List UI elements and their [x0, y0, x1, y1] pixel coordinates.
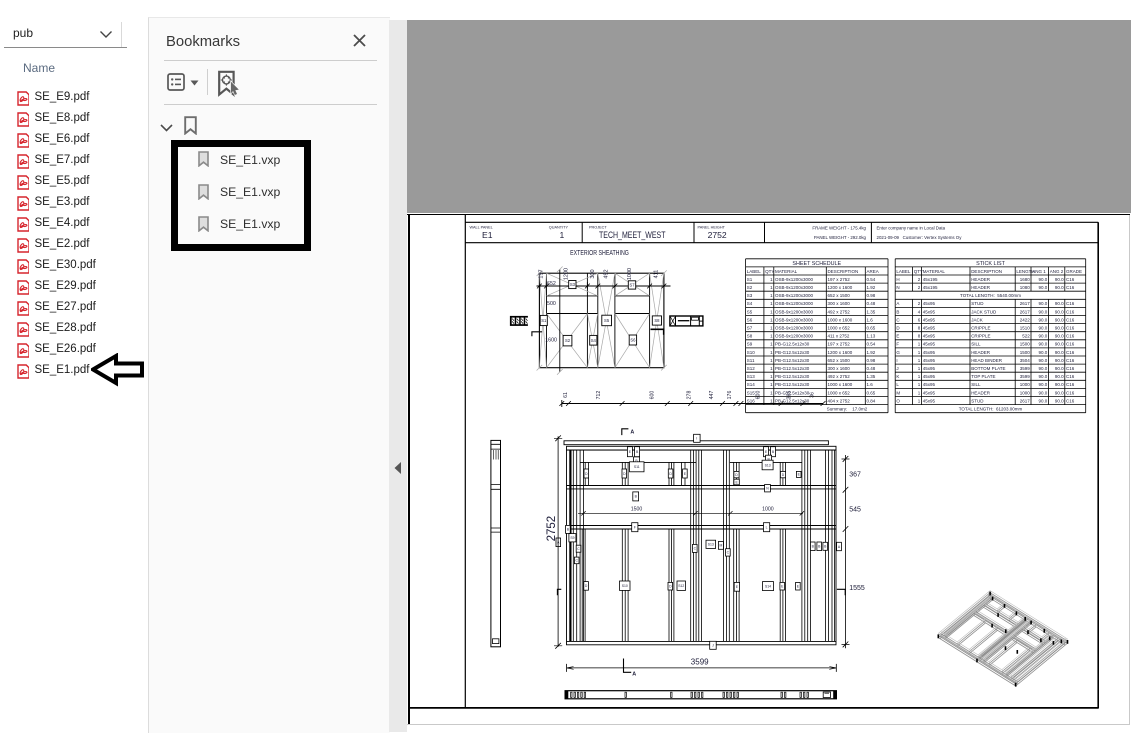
- svg-text:S9: S9: [570, 536, 574, 540]
- svg-text:1200: 1200: [563, 268, 569, 280]
- svg-text:SHEET SCHEDULE: SHEET SCHEDULE: [792, 261, 841, 267]
- svg-text:PROJECT: PROJECT: [589, 225, 607, 229]
- svg-text:K145x95TOP PLATE359990.090.0C1: K145x95TOP PLATE359990.090.0C16: [896, 374, 1074, 379]
- svg-text:3599: 3599: [691, 657, 709, 666]
- svg-text:O145x95STUD261790.090.0C16: O145x95STUD261790.090.0C16: [896, 398, 1074, 403]
- svg-text:STICK LIST: STICK LIST: [976, 261, 1005, 267]
- svg-text:L145x95SILL100090.090.0C16: L145x95SILL100090.090.0C16: [896, 382, 1074, 387]
- svg-text:S91PB-G12.5x12x30197 x 27520.5: S91PB-G12.5x12x30197 x 27520.54: [747, 342, 876, 347]
- svg-text:S61OSB-9x1200x30001000 x 16001: S61OSB-9x1200x30001000 x 16001.6: [747, 317, 873, 322]
- svg-text:S1: S1: [541, 318, 547, 323]
- svg-text:712: 712: [596, 391, 602, 400]
- svg-text:TOTAL LENGTH: 5540.00mm: TOTAL LENGTH: 5540.00mm: [960, 293, 1021, 298]
- svg-text:278: 278: [687, 391, 693, 400]
- svg-text:S101PB-G12.5x12x301200 x 16001: S101PB-G12.5x12x301200 x 16001.92: [747, 350, 876, 355]
- svg-text:TECH_MEET_WEST: TECH_MEET_WEST: [599, 230, 666, 240]
- svg-text:A: A: [632, 671, 636, 677]
- svg-text:492: 492: [604, 269, 610, 278]
- svg-text:S13: S13: [765, 463, 771, 467]
- svg-text:J: J: [712, 644, 714, 648]
- svg-text:S11OSB-9x1200x3000197 x 27520.: S11OSB-9x1200x3000197 x 27520.54: [747, 277, 876, 282]
- svg-text:1: 1: [560, 230, 565, 240]
- svg-text:176: 176: [727, 391, 733, 400]
- svg-text:S5: S5: [604, 318, 610, 323]
- svg-text:E1: E1: [482, 230, 493, 240]
- svg-text:S51OSB-9x1200x3000492 x 27521.: S51OSB-9x1200x3000492 x 27521.35: [747, 309, 876, 314]
- svg-text:1600: 1600: [545, 338, 557, 344]
- svg-text:G145x95HEADER150090.090.0C16: G145x95HEADER150090.090.0C16: [896, 350, 1074, 355]
- svg-text:D845x95CRIPPLE151090.090.0C16: D845x95CRIPPLE151090.090.0C16: [896, 326, 1074, 331]
- svg-text:S131PB-G12.5x12x30492 x 27521.: S131PB-G12.5x12x30492 x 27521.35: [747, 374, 876, 379]
- svg-text:H245x195HEADER168090.090.0C16: H245x195HEADER168090.090.0C16: [896, 277, 1074, 282]
- svg-text:1555: 1555: [849, 585, 865, 592]
- svg-text:545: 545: [849, 507, 861, 514]
- svg-text:S10: S10: [622, 584, 628, 588]
- svg-text:S111PB-G12.5x12x30652 x 15000.: S111PB-G12.5x12x30652 x 15000.98: [747, 358, 876, 363]
- svg-text:S21OSB-9x1200x30001200 x 16001: S21OSB-9x1200x30001200 x 16001.92: [747, 285, 876, 290]
- svg-text:L: L: [766, 526, 768, 530]
- svg-text:600: 600: [756, 391, 762, 400]
- svg-text:S8: S8: [654, 318, 660, 323]
- svg-text:I145x95HEAD BINDER350490.090.0: I145x95HEAD BINDER350490.090.0C16: [896, 358, 1074, 363]
- svg-text:600: 600: [650, 391, 656, 400]
- svg-text:652: 652: [547, 281, 556, 287]
- svg-text:LABELQTYMATERIALDESCRIPTIONARE: LABELQTYMATERIALDESCRIPTIONAREA: [747, 269, 879, 274]
- svg-text:M145x95HEADER100090.090.0C16: M145x95HEADER100090.090.0C16: [896, 390, 1074, 395]
- svg-text:FRAME WEIGHT - 175.4kg: FRAME WEIGHT - 175.4kg: [812, 226, 866, 231]
- svg-text:36: 36: [810, 392, 816, 398]
- svg-text:300: 300: [590, 269, 596, 278]
- svg-text:2021-09-09 Customer: Vertex: 2021-09-09 Customer: Vertex Systems Oy: [877, 235, 963, 240]
- svg-text:S31OSB-9x1200x3000652 x 15000.: S31OSB-9x1200x3000652 x 15000.98: [747, 293, 876, 298]
- svg-text:EXTERIOR SHEATHING: EXTERIOR SHEATHING: [570, 248, 629, 257]
- svg-text:S7: S7: [629, 283, 635, 288]
- svg-text:A: A: [630, 429, 634, 435]
- svg-text:B445x95JACK STUD261790.090.0C1: B445x95JACK STUD261790.090.0C16: [896, 309, 1074, 314]
- svg-text:E845x95CRIPPLE52290.090.0C16: E845x95CRIPPLE52290.090.0C16: [896, 334, 1074, 339]
- svg-text:F: F: [634, 526, 636, 530]
- svg-text:WALL PANEL: WALL PANEL: [470, 225, 493, 229]
- svg-text:S41OSB-9x1200x3000300 x 16000.: S41OSB-9x1200x3000300 x 16000.48: [747, 301, 876, 306]
- svg-text:2752: 2752: [708, 230, 727, 240]
- svg-text:197: 197: [539, 269, 545, 278]
- svg-text:447: 447: [709, 391, 715, 400]
- svg-text:367: 367: [849, 472, 861, 479]
- svg-text:S6: S6: [630, 338, 636, 343]
- svg-text:LABELQTYMATERIALDESCRIPTIONLEN: LABELQTYMATERIALDESCRIPTIONLENGTHANG 1AN…: [896, 269, 1082, 274]
- svg-text:S141PB-G12.5x12x301000 x 16001: S141PB-G12.5x12x301000 x 16001.6: [747, 382, 873, 387]
- svg-text:S13: S13: [708, 543, 714, 547]
- svg-text:S11: S11: [634, 465, 640, 469]
- svg-text:61: 61: [563, 392, 569, 398]
- svg-text:Enter company name in Local Da: Enter company name in Local Data: [877, 226, 946, 231]
- svg-text:TOTAL LENGTH: 61203.00mm: TOTAL LENGTH: 61203.00mm: [959, 407, 1023, 412]
- svg-text:A245x95STUD261790.090.0C16: A245x95STUD261790.090.0C16: [896, 301, 1074, 306]
- svg-text:500: 500: [547, 301, 556, 307]
- svg-text:F145x95SILL150090.090.0C16: F145x95SILL150090.090.0C16: [896, 342, 1074, 347]
- svg-text:S2: S2: [565, 338, 571, 343]
- svg-text:C645x95JACK242290.090.0C16: C645x95JACK242290.090.0C16: [896, 317, 1074, 322]
- svg-text:PANEL HEIGHT: PANEL HEIGHT: [698, 225, 726, 229]
- svg-text:S4: S4: [591, 338, 597, 343]
- svg-text:S121PB-G12.5x12x30300 x 16000.: S121PB-G12.5x12x30300 x 16000.48: [747, 366, 876, 371]
- svg-text:1000: 1000: [627, 268, 633, 280]
- svg-text:M: M: [719, 544, 722, 548]
- svg-text:S161PB-G12.5x12x30404 x 27520.: S161PB-G12.5x12x30404 x 27520.84: [747, 398, 876, 403]
- svg-text:2752: 2752: [546, 516, 558, 542]
- svg-text:I: I: [696, 437, 697, 441]
- svg-text:1500: 1500: [631, 507, 643, 513]
- svg-text:S12: S12: [678, 584, 684, 588]
- svg-text:S3: S3: [570, 282, 576, 287]
- svg-text:N245x195HEADER108090.090.0C16: N245x195HEADER108090.090.0C16: [896, 285, 1074, 290]
- svg-text:Summary: 17.0m2: Summary: 17.0m2: [827, 406, 868, 411]
- svg-text:1000: 1000: [762, 507, 774, 513]
- svg-text:J145x95BOTTOM PLATE359990.090.: J145x95BOTTOM PLATE359990.090.0C16: [896, 366, 1074, 371]
- svg-text:QUANTITY: QUANTITY: [549, 225, 569, 229]
- svg-text:S14: S14: [765, 584, 771, 588]
- svg-text:411: 411: [653, 270, 659, 279]
- svg-text:PANEL WEIGHT - 292.0kg: PANEL WEIGHT - 292.0kg: [814, 235, 867, 240]
- svg-text:S81OSB-9x1200x3000411 x 27521.: S81OSB-9x1200x3000411 x 27521.13: [747, 334, 876, 339]
- svg-text:S71OSB-9x1200x30001000 x 6520.: S71OSB-9x1200x30001000 x 6520.65: [747, 326, 876, 331]
